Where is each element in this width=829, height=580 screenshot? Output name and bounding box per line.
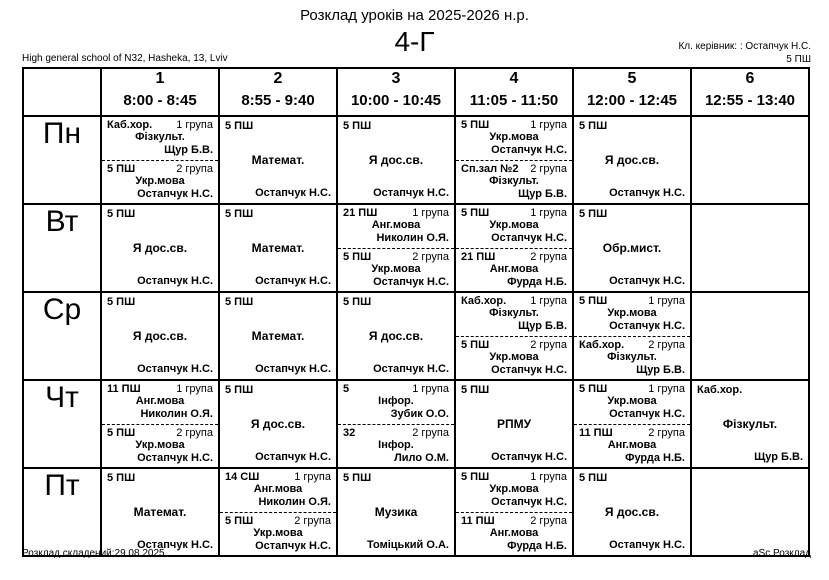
lesson-cell-thu-6: Каб.хор.Фізкульт.Щур Б.В. xyxy=(691,380,809,468)
lesson-subject: Математ. xyxy=(225,241,331,255)
lesson-teacher: Остапчук Н.С. xyxy=(107,452,213,464)
lesson-cell-fri-1: 5 ПШМатемат.Остапчук Н.С. xyxy=(101,468,219,556)
lesson-group-1: 5 ПШ1 групаУкр.моваОстапчук Н.С. xyxy=(456,469,572,513)
lesson-group-label: 2 група xyxy=(530,251,567,263)
lesson-teacher: Остапчук Н.С. xyxy=(461,364,567,376)
lesson-teacher: Щур Б.В. xyxy=(697,451,803,463)
lesson-split: Каб.хор.1 групаФізкульт.Щур Б.В.5 ПШ2 гр… xyxy=(102,117,218,203)
lesson-room-group-line: 322 група xyxy=(343,427,449,439)
lesson-room: Каб.хор. xyxy=(579,339,624,351)
lesson-group-1: 14 СШ1 групаАнг.моваНиколин О.Я. xyxy=(220,469,336,513)
timetable-header-row: 18:00 - 8:4528:55 - 9:40310:00 - 10:4541… xyxy=(23,68,809,116)
lesson-cell-thu-1: 11 ПШ1 групаАнг.моваНиколин О.Я.5 ПШ2 гр… xyxy=(101,380,219,468)
lesson-group-label: 1 група xyxy=(530,119,567,131)
lesson-group-1: Каб.хор.1 групаФізкульт.Щур Б.В. xyxy=(456,293,572,337)
period-number: 3 xyxy=(338,69,454,90)
lesson-room-group-line: 21 ПШ2 група xyxy=(461,251,567,263)
lesson-group-label: 1 група xyxy=(530,295,567,307)
lesson-group-label: 1 група xyxy=(294,471,331,483)
page-title: Розклад уроків на 2025-2026 н.р. xyxy=(0,7,829,24)
lesson-cell-fri-3: 5 ПШМузикаТоміцький О.А. xyxy=(337,468,455,556)
lesson-teacher: Остапчук Н.С. xyxy=(461,232,567,244)
lesson-teacher: Фурда Н.Б. xyxy=(579,452,685,464)
lesson-room: 21 ПШ xyxy=(343,207,377,219)
lesson-teacher: Николин О.Я. xyxy=(225,496,331,508)
lesson-room-group-line: 5 ПШ1 група xyxy=(461,207,567,219)
lesson-room: 5 ПШ xyxy=(579,383,607,395)
lesson-room: 5 ПШ xyxy=(461,339,489,351)
lesson-teacher: Остапчук Н.С. xyxy=(461,451,567,463)
lesson-room-group-line: 11 ПШ2 група xyxy=(579,427,685,439)
lesson-group-2: 5 ПШ2 групаУкр.моваОстапчук Н.С. xyxy=(220,513,336,556)
period-number: 1 xyxy=(102,69,218,90)
lesson-subject: Анг.мова xyxy=(461,528,567,539)
day-row-thu: Чт11 ПШ1 групаАнг.моваНиколин О.Я.5 ПШ2 … xyxy=(23,380,809,468)
lesson-cell-tue-3: 21 ПШ1 групаАнг.моваНиколин О.Я.5 ПШ2 гр… xyxy=(337,204,455,292)
lesson-room: 5 ПШ xyxy=(461,471,489,483)
lesson-teacher: Фурда Н.Б. xyxy=(461,276,567,288)
lesson-group-label: 1 група xyxy=(412,383,449,395)
lesson-group-1: 5 ПШ1 групаУкр.моваОстапчук Н.С. xyxy=(456,117,572,161)
lesson-subject: Укр.мова xyxy=(343,264,449,275)
period-header-3: 310:00 - 10:45 xyxy=(337,68,455,116)
lesson-split: 11 ПШ1 групаАнг.моваНиколин О.Я.5 ПШ2 гр… xyxy=(102,381,218,467)
lesson-teacher: Остапчук Н.С. xyxy=(107,188,213,200)
lesson-subject: Математ. xyxy=(225,329,331,343)
lesson-subject: Укр.мова xyxy=(461,484,567,495)
lesson-cell-mon-6 xyxy=(691,116,809,204)
lesson-room-group-line: Каб.хор.1 група xyxy=(461,295,567,307)
lesson-teacher: Фурда Н.Б. xyxy=(461,540,567,552)
lesson-teacher: Остапчук Н.С. xyxy=(107,363,213,375)
lesson-room-group-line: 5 ПШ2 група xyxy=(225,515,331,527)
period-header-6: 612:55 - 13:40 xyxy=(691,68,809,116)
lesson-teacher: Остапчук Н.С. xyxy=(107,275,213,287)
lesson-single: 5 ПШЯ дос.св.Остапчук Н.С. xyxy=(338,293,454,379)
lesson-cell-fri-6 xyxy=(691,468,809,556)
lesson-cell-fri-4: 5 ПШ1 групаУкр.моваОстапчук Н.С.11 ПШ2 г… xyxy=(455,468,573,556)
lesson-teacher: Остапчук Н.С. xyxy=(461,144,567,156)
lesson-room: 5 ПШ xyxy=(107,208,213,220)
lesson-group-label: 2 група xyxy=(294,515,331,527)
day-row-tue: Вт5 ПШЯ дос.св.Остапчук Н.С.5 ПШМатемат.… xyxy=(23,204,809,292)
lesson-single: 5 ПШЯ дос.св.Остапчук Н.С. xyxy=(220,381,336,467)
day-label-wed: Ср xyxy=(23,292,101,380)
period-time: 12:00 - 12:45 xyxy=(574,90,690,111)
lesson-subject: Укр.мова xyxy=(579,308,685,319)
lesson-cell-thu-3: 51 групаІнфор.Зубик О.О.322 групаІнфор.Л… xyxy=(337,380,455,468)
lesson-group-1: 51 групаІнфор.Зубик О.О. xyxy=(338,381,454,425)
lesson-room: 5 ПШ xyxy=(579,208,685,220)
lesson-teacher: Щур Б.В. xyxy=(107,144,213,156)
lesson-single: 5 ПШМатемат.Остапчук Н.С. xyxy=(102,469,218,555)
app-credit: aSc Розклад xyxy=(753,548,811,559)
lesson-room: 5 ПШ xyxy=(343,120,449,132)
lesson-subject: Фізкульт. xyxy=(461,308,567,319)
lesson-single: 5 ПШЯ дос.св.Остапчук Н.С. xyxy=(574,469,690,555)
lesson-teacher: Щур Б.В. xyxy=(461,188,567,200)
lesson-teacher: Остапчук Н.С. xyxy=(343,276,449,288)
lesson-single: 5 ПШМатемат.Остапчук Н.С. xyxy=(220,117,336,203)
period-number: 6 xyxy=(692,69,808,90)
lesson-cell-mon-3: 5 ПШЯ дос.св.Остапчук Н.С. xyxy=(337,116,455,204)
lesson-cell-wed-1: 5 ПШЯ дос.св.Остапчук Н.С. xyxy=(101,292,219,380)
day-label-mon: Пн xyxy=(23,116,101,204)
lesson-room: Каб.хор. xyxy=(697,384,803,396)
lesson-single: 5 ПШЯ дос.св.Остапчук Н.С. xyxy=(574,117,690,203)
lesson-subject: Я дос.св. xyxy=(343,329,449,343)
lesson-room: 21 ПШ xyxy=(461,251,495,263)
lesson-subject: Анг.мова xyxy=(225,484,331,495)
period-header-4: 411:05 - 11:50 xyxy=(455,68,573,116)
lesson-subject: Анг.мова xyxy=(343,220,449,231)
class-teacher-label: Кл. керівник: : Остапчук Н.С. xyxy=(678,41,811,54)
lesson-subject: Анг.мова xyxy=(107,396,213,407)
lesson-group-label: 2 група xyxy=(530,339,567,351)
lesson-subject: Музика xyxy=(343,505,449,519)
lesson-teacher: Остапчук Н.С. xyxy=(579,187,685,199)
lesson-teacher: Щур Б.В. xyxy=(579,364,685,376)
lesson-room-group-line: Каб.хор.2 група xyxy=(579,339,685,351)
lesson-room: 5 ПШ xyxy=(225,515,253,527)
lesson-cell-tue-2: 5 ПШМатемат.Остапчук Н.С. xyxy=(219,204,337,292)
lesson-room: Каб.хор. xyxy=(107,119,152,131)
lesson-room: 5 ПШ xyxy=(107,472,213,484)
lesson-room: 11 ПШ xyxy=(107,383,141,395)
lesson-group-label: 1 група xyxy=(176,119,213,131)
lesson-split: 51 групаІнфор.Зубик О.О.322 групаІнфор.Л… xyxy=(338,381,454,467)
lesson-subject: Фізкульт. xyxy=(107,132,213,143)
lesson-split: 5 ПШ1 групаУкр.моваОстапчук Н.С.11 ПШ2 г… xyxy=(574,381,690,467)
lesson-single: 5 ПШРПМУОстапчук Н.С. xyxy=(456,381,572,467)
lesson-group-label: 1 група xyxy=(648,295,685,307)
lesson-teacher: Николин О.Я. xyxy=(107,408,213,420)
period-number: 4 xyxy=(456,69,572,90)
lesson-teacher: Остапчук Н.С. xyxy=(579,320,685,332)
lesson-group-1: 5 ПШ1 групаУкр.моваОстапчук Н.С. xyxy=(456,205,572,249)
lesson-group-2: 5 ПШ2 групаУкр.моваОстапчук Н.С. xyxy=(338,249,454,292)
day-label-fri: Пт xyxy=(23,468,101,556)
period-time: 12:55 - 13:40 xyxy=(692,90,808,111)
lesson-subject: Я дос.св. xyxy=(579,505,685,519)
lesson-subject: Я дос.св. xyxy=(107,329,213,343)
lesson-cell-wed-3: 5 ПШЯ дос.св.Остапчук Н.С. xyxy=(337,292,455,380)
lesson-split: 21 ПШ1 групаАнг.моваНиколин О.Я.5 ПШ2 гр… xyxy=(338,205,454,291)
period-time: 8:55 - 9:40 xyxy=(220,90,336,111)
lesson-teacher: Щур Б.В. xyxy=(461,320,567,332)
lesson-room-group-line: 5 ПШ1 група xyxy=(579,295,685,307)
class-teacher-room: 5 ПШ xyxy=(678,54,811,67)
lesson-room: 11 ПШ xyxy=(461,515,495,527)
lesson-subject: Укр.мова xyxy=(461,132,567,143)
lesson-group-label: 2 група xyxy=(176,427,213,439)
lesson-room-group-line: 5 ПШ2 група xyxy=(461,339,567,351)
lesson-teacher: Остапчук Н.С. xyxy=(225,275,331,287)
period-number: 5 xyxy=(574,69,690,90)
lesson-group-2: 11 ПШ2 групаАнг.моваФурда Н.Б. xyxy=(574,425,690,468)
lesson-subject: Обр.мист. xyxy=(579,241,685,255)
lesson-cell-fri-2: 14 СШ1 групаАнг.моваНиколин О.Я.5 ПШ2 гр… xyxy=(219,468,337,556)
lesson-cell-wed-6 xyxy=(691,292,809,380)
lesson-group-label: 2 група xyxy=(648,339,685,351)
lesson-room: 5 ПШ xyxy=(225,384,331,396)
lesson-room-group-line: 5 ПШ2 група xyxy=(343,251,449,263)
lesson-group-1: 21 ПШ1 групаАнг.моваНиколин О.Я. xyxy=(338,205,454,249)
lesson-room-group-line: 21 ПШ1 група xyxy=(343,207,449,219)
lesson-group-2: 5 ПШ2 групаУкр.моваОстапчук Н.С. xyxy=(102,161,218,204)
lesson-teacher: Остапчук Н.С. xyxy=(461,496,567,508)
lesson-teacher: Николин О.Я. xyxy=(343,232,449,244)
lesson-cell-thu-2: 5 ПШЯ дос.св.Остапчук Н.С. xyxy=(219,380,337,468)
lesson-room: 5 ПШ xyxy=(343,296,449,308)
lesson-subject: Математ. xyxy=(225,153,331,167)
lesson-group-1: 5 ПШ1 групаУкр.моваОстапчук Н.С. xyxy=(574,293,690,337)
day-row-wed: Ср5 ПШЯ дос.св.Остапчук Н.С.5 ПШМатемат.… xyxy=(23,292,809,380)
lesson-subject: Фізкульт. xyxy=(579,352,685,363)
lesson-group-2: 5 ПШ2 групаУкр.моваОстапчук Н.С. xyxy=(456,337,572,380)
lesson-subject: Анг.мова xyxy=(579,440,685,451)
lesson-room: 5 ПШ xyxy=(225,120,331,132)
lesson-subject: Математ. xyxy=(107,505,213,519)
lesson-split: 5 ПШ1 групаУкр.моваОстапчук Н.С.21 ПШ2 г… xyxy=(456,205,572,291)
lesson-split: 5 ПШ1 групаУкр.моваОстапчук Н.С.Сп.зал №… xyxy=(456,117,572,203)
lesson-teacher: Остапчук Н.С. xyxy=(343,363,449,375)
lesson-subject: Укр.мова xyxy=(225,528,331,539)
lesson-room: Сп.зал №2 xyxy=(461,163,519,175)
lesson-room: 5 ПШ xyxy=(461,384,567,396)
lesson-single: 5 ПШОбр.мист.Остапчук Н.С. xyxy=(574,205,690,291)
lesson-subject: Укр.мова xyxy=(461,220,567,231)
lesson-room-group-line: 14 СШ1 група xyxy=(225,471,331,483)
lesson-group-2: 5 ПШ2 групаУкр.моваОстапчук Н.С. xyxy=(102,425,218,468)
day-row-fri: Пт5 ПШМатемат.Остапчук Н.С.14 СШ1 групаА… xyxy=(23,468,809,556)
lesson-room-group-line: 11 ПШ2 група xyxy=(461,515,567,527)
lesson-cell-fri-5: 5 ПШЯ дос.св.Остапчук Н.С. xyxy=(573,468,691,556)
lesson-single: 5 ПШЯ дос.св.Остапчук Н.С. xyxy=(102,293,218,379)
lesson-single: 5 ПШМузикаТоміцький О.А. xyxy=(338,469,454,555)
lesson-group-label: 2 група xyxy=(176,163,213,175)
lesson-cell-tue-5: 5 ПШОбр.мист.Остапчук Н.С. xyxy=(573,204,691,292)
lesson-group-label: 1 група xyxy=(530,471,567,483)
lesson-subject: Я дос.св. xyxy=(579,153,685,167)
lesson-teacher: Лило О.М. xyxy=(343,452,449,464)
lesson-subject: Фізкульт. xyxy=(697,417,803,431)
lesson-group-2: 322 групаІнфор.Лило О.М. xyxy=(338,425,454,468)
lesson-room: 5 ПШ xyxy=(343,251,371,263)
timetable-header: 18:00 - 8:4528:55 - 9:40310:00 - 10:4541… xyxy=(23,68,809,116)
timetable-table: 18:00 - 8:4528:55 - 9:40310:00 - 10:4541… xyxy=(22,67,810,557)
timetable-page: Розклад уроків на 2025-2026 н.р. 4-Г Hig… xyxy=(0,0,829,580)
lesson-group-label: 1 група xyxy=(176,383,213,395)
lesson-room: Каб.хор. xyxy=(461,295,506,307)
period-time: 11:05 - 11:50 xyxy=(456,90,572,111)
lesson-single: Каб.хор.Фізкульт.Щур Б.В. xyxy=(692,381,808,467)
lesson-subject: РПМУ xyxy=(461,417,567,431)
period-header-2: 28:55 - 9:40 xyxy=(219,68,337,116)
lesson-teacher: Остапчук Н.С. xyxy=(579,408,685,420)
lesson-group-label: 2 група xyxy=(530,163,567,175)
lesson-room-group-line: 51 група xyxy=(343,383,449,395)
lesson-room-group-line: Каб.хор.1 група xyxy=(107,119,213,131)
lesson-room-group-line: 5 ПШ1 група xyxy=(461,119,567,131)
lesson-room-group-line: 5 ПШ2 група xyxy=(107,427,213,439)
lesson-teacher: Остапчук Н.С. xyxy=(343,187,449,199)
lesson-subject: Я дос.св. xyxy=(107,241,213,255)
lesson-cell-mon-4: 5 ПШ1 групаУкр.моваОстапчук Н.С.Сп.зал №… xyxy=(455,116,573,204)
lesson-room: 32 xyxy=(343,427,355,439)
lesson-cell-mon-1: Каб.хор.1 групаФізкульт.Щур Б.В.5 ПШ2 гр… xyxy=(101,116,219,204)
lesson-group-2: 11 ПШ2 групаАнг.моваФурда Н.Б. xyxy=(456,513,572,556)
lesson-group-label: 2 група xyxy=(412,251,449,263)
lesson-teacher: Остапчук Н.С. xyxy=(225,363,331,375)
lesson-single: 5 ПШЯ дос.св.Остапчук Н.С. xyxy=(102,205,218,291)
lesson-group-2: Каб.хор.2 групаФізкульт.Щур Б.В. xyxy=(574,337,690,380)
class-teacher-block: Кл. керівник: : Остапчук Н.С. 5 ПШ xyxy=(678,41,811,66)
lesson-split: 5 ПШ1 групаУкр.моваОстапчук Н.С.Каб.хор.… xyxy=(574,293,690,379)
lesson-group-2: 21 ПШ2 групаАнг.моваФурда Н.Б. xyxy=(456,249,572,292)
lesson-group-label: 2 група xyxy=(648,427,685,439)
lesson-group-label: 1 група xyxy=(412,207,449,219)
lesson-group-1: Каб.хор.1 групаФізкульт.Щур Б.В. xyxy=(102,117,218,161)
lesson-subject: Укр.мова xyxy=(579,396,685,407)
lesson-cell-thu-4: 5 ПШРПМУОстапчук Н.С. xyxy=(455,380,573,468)
lesson-subject: Інфор. xyxy=(343,440,449,451)
lesson-room: 5 ПШ xyxy=(579,472,685,484)
lesson-room-group-line: 5 ПШ1 група xyxy=(579,383,685,395)
lesson-teacher: Томіцький О.А. xyxy=(343,539,449,551)
lesson-subject: Я дос.св. xyxy=(225,417,331,431)
lesson-subject: Укр.мова xyxy=(107,176,213,187)
lesson-room-group-line: 5 ПШ1 група xyxy=(461,471,567,483)
lesson-subject: Фізкульт. xyxy=(461,176,567,187)
lesson-room: 5 ПШ xyxy=(343,472,449,484)
lesson-room: 5 xyxy=(343,383,349,395)
day-label-tue: Вт xyxy=(23,204,101,292)
generated-date: Розклад складений:29.08.2025 xyxy=(22,548,165,559)
lesson-room: 5 ПШ xyxy=(461,207,489,219)
lesson-subject: Я дос.св. xyxy=(343,153,449,167)
lesson-room: 11 ПШ xyxy=(579,427,613,439)
lesson-cell-tue-1: 5 ПШЯ дос.св.Остапчук Н.С. xyxy=(101,204,219,292)
lesson-teacher: Остапчук Н.С. xyxy=(225,187,331,199)
lesson-group-2: Сп.зал №22 групаФізкульт.Щур Б.В. xyxy=(456,161,572,204)
period-time: 8:00 - 8:45 xyxy=(102,90,218,111)
lesson-subject: Інфор. xyxy=(343,396,449,407)
lesson-room-group-line: 11 ПШ1 група xyxy=(107,383,213,395)
lesson-group-1: 5 ПШ1 групаУкр.моваОстапчук Н.С. xyxy=(574,381,690,425)
lesson-room-group-line: Сп.зал №22 група xyxy=(461,163,567,175)
corner-cell xyxy=(23,68,101,116)
lesson-subject: Анг.мова xyxy=(461,264,567,275)
lesson-cell-mon-5: 5 ПШЯ дос.св.Остапчук Н.С. xyxy=(573,116,691,204)
lesson-group-label: 2 група xyxy=(530,515,567,527)
lesson-cell-mon-2: 5 ПШМатемат.Остапчук Н.С. xyxy=(219,116,337,204)
lesson-cell-tue-4: 5 ПШ1 групаУкр.моваОстапчук Н.С.21 ПШ2 г… xyxy=(455,204,573,292)
day-label-thu: Чт xyxy=(23,380,101,468)
period-number: 2 xyxy=(220,69,336,90)
lesson-teacher: Остапчук Н.С. xyxy=(579,539,685,551)
lesson-room: 5 ПШ xyxy=(107,163,135,175)
lesson-room: 5 ПШ xyxy=(225,296,331,308)
lesson-cell-wed-4: Каб.хор.1 групаФізкульт.Щур Б.В.5 ПШ2 гр… xyxy=(455,292,573,380)
lesson-group-label: 1 група xyxy=(648,383,685,395)
lesson-subject: Укр.мова xyxy=(461,352,567,363)
timetable-body: ПнКаб.хор.1 групаФізкульт.Щур Б.В.5 ПШ2 … xyxy=(23,116,809,556)
lesson-split: 5 ПШ1 групаУкр.моваОстапчук Н.С.11 ПШ2 г… xyxy=(456,469,572,555)
lesson-teacher: Остапчук Н.С. xyxy=(225,451,331,463)
lesson-subject: Укр.мова xyxy=(107,440,213,451)
period-header-5: 512:00 - 12:45 xyxy=(573,68,691,116)
lesson-room: 5 ПШ xyxy=(225,208,331,220)
lesson-single: 5 ПШМатемат.Остапчук Н.С. xyxy=(220,205,336,291)
lesson-room: 5 ПШ xyxy=(107,296,213,308)
lesson-room: 5 ПШ xyxy=(107,427,135,439)
lesson-teacher: Остапчук Н.С. xyxy=(579,275,685,287)
lesson-room: 14 СШ xyxy=(225,471,259,483)
lesson-room: 5 ПШ xyxy=(461,119,489,131)
lesson-group-1: 11 ПШ1 групаАнг.моваНиколин О.Я. xyxy=(102,381,218,425)
lesson-group-label: 2 група xyxy=(412,427,449,439)
lesson-cell-thu-5: 5 ПШ1 групаУкр.моваОстапчук Н.С.11 ПШ2 г… xyxy=(573,380,691,468)
lesson-cell-tue-6 xyxy=(691,204,809,292)
day-row-mon: ПнКаб.хор.1 групаФізкульт.Щур Б.В.5 ПШ2 … xyxy=(23,116,809,204)
period-header-1: 18:00 - 8:45 xyxy=(101,68,219,116)
lesson-split: 14 СШ1 групаАнг.моваНиколин О.Я.5 ПШ2 гр… xyxy=(220,469,336,555)
lesson-group-label: 1 група xyxy=(530,207,567,219)
lesson-room: 5 ПШ xyxy=(579,295,607,307)
lesson-cell-wed-5: 5 ПШ1 групаУкр.моваОстапчук Н.С.Каб.хор.… xyxy=(573,292,691,380)
lesson-room-group-line: 5 ПШ2 група xyxy=(107,163,213,175)
lesson-split: Каб.хор.1 групаФізкульт.Щур Б.В.5 ПШ2 гр… xyxy=(456,293,572,379)
lesson-teacher: Остапчук Н.С. xyxy=(225,540,331,552)
lesson-room: 5 ПШ xyxy=(579,120,685,132)
lesson-teacher: Зубик О.О. xyxy=(343,408,449,420)
school-name: High general school of N32, Hasheka, 13,… xyxy=(22,53,228,64)
lesson-single: 5 ПШЯ дос.св.Остапчук Н.С. xyxy=(338,117,454,203)
lesson-cell-wed-2: 5 ПШМатемат.Остапчук Н.С. xyxy=(219,292,337,380)
period-time: 10:00 - 10:45 xyxy=(338,90,454,111)
lesson-single: 5 ПШМатемат.Остапчук Н.С. xyxy=(220,293,336,379)
